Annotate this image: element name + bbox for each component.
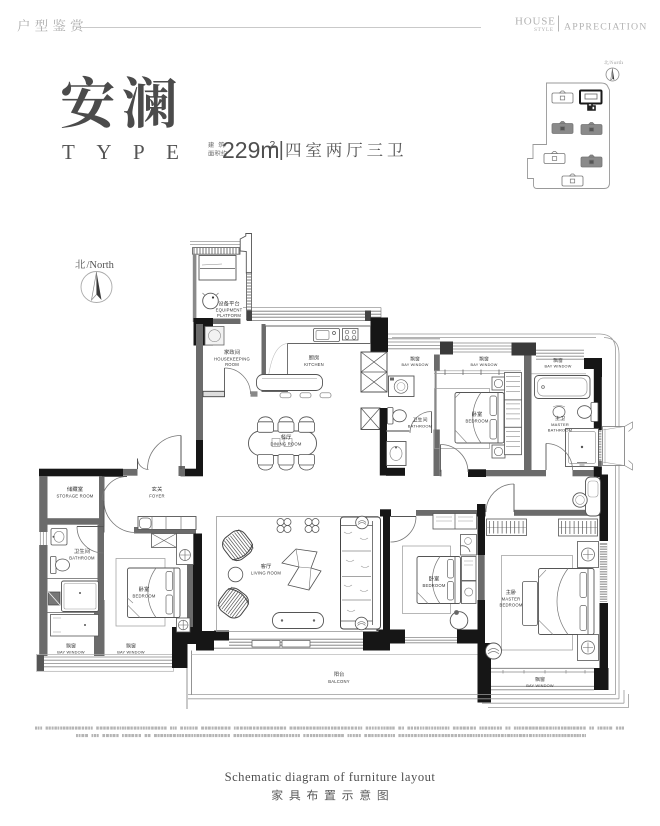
svg-text:BEDROOM: BEDROOM xyxy=(499,603,522,608)
svg-text:/North: /North xyxy=(87,260,115,271)
svg-text:BATHROOM: BATHROOM xyxy=(548,428,572,433)
svg-text:STYLE: STYLE xyxy=(534,27,554,33)
svg-text:FOYER: FOYER xyxy=(149,494,164,499)
svg-text:EQUIPMENT: EQUIPMENT xyxy=(216,308,243,313)
svg-text:BEDROOM: BEDROOM xyxy=(132,594,155,599)
svg-text:BAY WINDOW: BAY WINDOW xyxy=(57,650,85,655)
svg-text:BEDROOM: BEDROOM xyxy=(422,583,445,588)
svg-text:ROOM: ROOM xyxy=(225,362,239,367)
svg-text:BAY WINDOW: BAY WINDOW xyxy=(117,650,145,655)
svg-text:TYPE: TYPE xyxy=(62,140,201,164)
svg-text:DINING ROOM: DINING ROOM xyxy=(270,442,301,447)
svg-text:STORAGE ROOM: STORAGE ROOM xyxy=(57,494,94,499)
svg-text:MASTER: MASTER xyxy=(551,422,569,427)
svg-text:Schematic diagram of furniture: Schematic diagram of furniture layout xyxy=(225,770,436,784)
svg-text:KITCHEN: KITCHEN xyxy=(304,362,324,367)
svg-text:BATHROOM: BATHROOM xyxy=(69,556,95,561)
svg-text:2: 2 xyxy=(270,139,276,151)
svg-text:MASTER: MASTER xyxy=(502,597,521,602)
svg-text:BAY WINDOW: BAY WINDOW xyxy=(402,363,429,367)
svg-text:BATHROOM: BATHROOM xyxy=(408,424,432,429)
svg-text:HOUSEKEEPING: HOUSEKEEPING xyxy=(214,357,250,362)
svg-text:BAY WINDOW: BAY WINDOW xyxy=(471,363,498,367)
svg-text:APPRECIATION: APPRECIATION xyxy=(564,22,647,33)
svg-text:BAY WINDOW: BAY WINDOW xyxy=(545,365,572,369)
svg-text:BAY WINDOW: BAY WINDOW xyxy=(526,683,554,688)
svg-text:BALCONY: BALCONY xyxy=(328,679,349,684)
svg-text:LIVING ROOM: LIVING ROOM xyxy=(251,571,281,576)
svg-text:HOUSE: HOUSE xyxy=(515,16,556,28)
svg-text:PLATFORM: PLATFORM xyxy=(217,313,241,318)
svg-text:BEDROOM: BEDROOM xyxy=(465,419,488,424)
